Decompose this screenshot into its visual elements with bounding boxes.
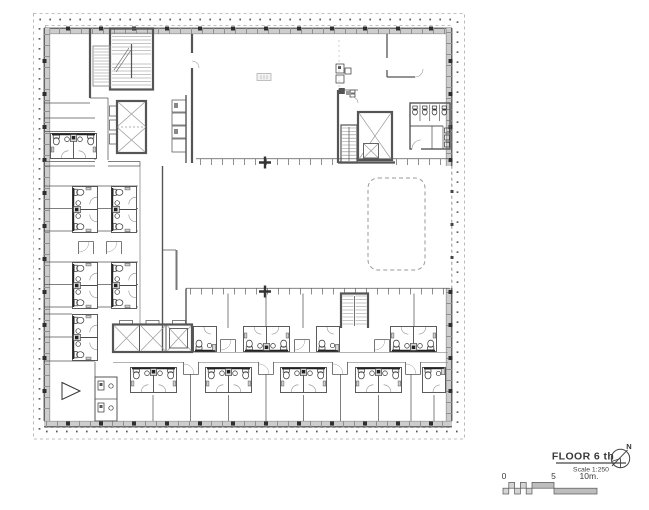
mid-elevator (358, 112, 392, 160)
elevator-bank (113, 321, 192, 353)
secondary-stair (93, 46, 110, 86)
floor-plan-drawing: FLOOR 6 th Scale 1:250 N 0 5 10m. (0, 0, 649, 510)
scale-ten-label: 10m. (580, 471, 599, 481)
scale-zero-label: 0 (502, 471, 507, 481)
entry-arrow (62, 383, 80, 400)
courtyard (368, 166, 454, 288)
core-top-left (90, 28, 186, 163)
service-shaft (172, 100, 186, 152)
core-mid (338, 88, 395, 163)
elevator-pair (110, 101, 147, 153)
hall-north-room (387, 34, 423, 77)
mid-stair (341, 125, 357, 163)
toilet-block (410, 103, 450, 149)
main-stair (110, 29, 153, 90)
north-arrow-icon: N (611, 442, 631, 468)
south-stair (341, 294, 368, 329)
cross-column-south (259, 286, 271, 298)
room-tag (257, 74, 271, 81)
north-label: N (626, 442, 631, 451)
scale-five-label: 5 (551, 471, 556, 481)
page-title: FLOOR 6 th (552, 451, 614, 463)
floor-plan-page: FLOOR 6 th Scale 1:250 N 0 5 10m. (0, 0, 649, 510)
perimeter-walls (44, 28, 452, 427)
cross-column (259, 157, 271, 169)
bottom-wing (113, 286, 450, 422)
scale-bar: 0 5 10m. (502, 471, 599, 494)
corner-bath-block (95, 362, 117, 421)
